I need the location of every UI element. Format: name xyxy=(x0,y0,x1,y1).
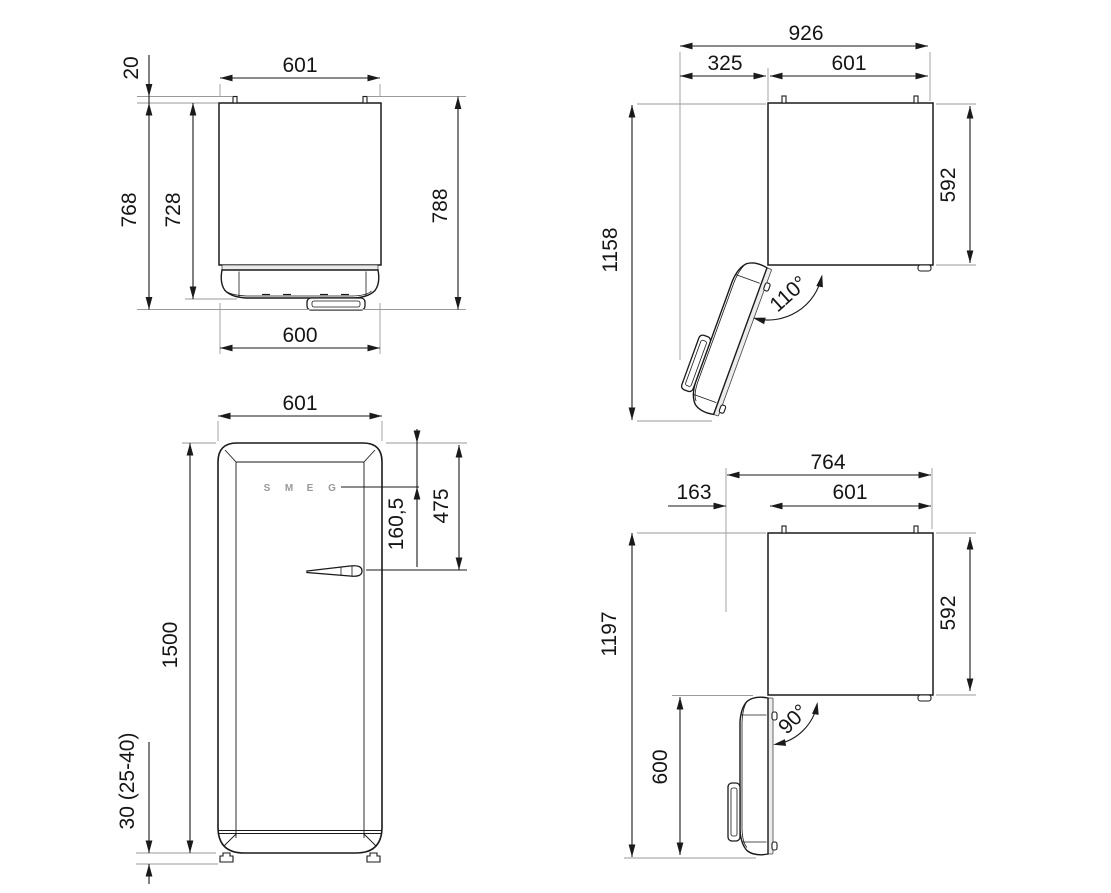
dimension-arrowhead xyxy=(146,841,153,854)
dim-label-handle-offset: 475 xyxy=(430,488,453,523)
dim-label-depth-728: 728 xyxy=(162,192,185,227)
dim-label-depth-open: 1158 xyxy=(599,227,622,272)
dimension-arrowhead xyxy=(455,297,462,310)
dimension-arrowhead xyxy=(368,345,381,352)
dimension-arrowhead xyxy=(916,73,929,80)
dim-label-cabinet-depth: 592 xyxy=(937,595,960,630)
rear-spacer-right xyxy=(363,97,367,104)
dimension-arrowhead xyxy=(455,97,462,110)
hinge-bracket xyxy=(918,695,931,701)
dim-label-overall-width: 926 xyxy=(788,22,823,45)
dimension-arrowhead xyxy=(680,43,693,50)
dimension-arrowhead xyxy=(770,73,783,80)
door-gasket xyxy=(222,265,378,270)
dimension-arrowhead xyxy=(629,845,636,858)
dimension-arrowhead xyxy=(770,503,783,510)
dimension-arrowhead xyxy=(190,287,197,300)
door-shell xyxy=(740,697,768,855)
dimension-arrowhead xyxy=(187,443,194,456)
dimension-arrowhead xyxy=(677,843,684,856)
dimension-arrowhead xyxy=(220,345,233,352)
dimension-arrowhead xyxy=(629,533,636,546)
dimension-arrowhead xyxy=(677,697,684,710)
dim-label-depth-open: 1197 xyxy=(598,611,621,656)
dim-label-width: 601 xyxy=(282,392,317,415)
rear-spacer-left xyxy=(233,97,237,104)
dim-label-height: 1500 xyxy=(159,622,182,669)
dim-label-width: 601 xyxy=(831,52,866,75)
dim-label-feet: 30 (25-40) xyxy=(116,733,139,830)
dimension-arrowhead xyxy=(220,75,233,82)
view-top-open-110: 926 325 601 1158 592 110° xyxy=(599,22,960,418)
door-gasket xyxy=(768,698,773,854)
dimension-arrowhead xyxy=(816,274,825,288)
rear-spacer-left xyxy=(782,96,786,103)
dim-label-door-width: 600 xyxy=(282,324,317,347)
cabinet-outline xyxy=(768,103,933,265)
door-handle xyxy=(307,298,365,310)
dimension-arrowhead xyxy=(414,487,421,500)
dimension-arrowhead xyxy=(727,472,740,479)
dim-label-logo-offset: 160,5 xyxy=(385,498,408,551)
dim-label-overall-width: 764 xyxy=(810,451,845,474)
dim-label-door-swing: 325 xyxy=(707,52,742,75)
dim-label-width: 601 xyxy=(282,54,317,77)
dimension-arrowhead xyxy=(370,413,383,420)
dim-label-door-angle: 90° xyxy=(774,700,813,739)
dim-label-door-protrusion: 163 xyxy=(676,481,711,504)
dim-label-depth-768: 768 xyxy=(118,192,141,227)
dimension-arrowhead xyxy=(967,251,974,264)
door-handle xyxy=(728,783,740,841)
door-hinge-pin xyxy=(772,842,777,850)
dim-label-width: 601 xyxy=(832,481,867,504)
view-top-closed: 601 20 768 728 788 600 xyxy=(118,54,452,347)
dimension-arrowhead xyxy=(146,864,153,877)
dimension-arrowhead xyxy=(218,413,231,420)
dim-label-door-width: 600 xyxy=(649,749,672,784)
dimension-arrowhead xyxy=(967,537,974,550)
dimension-arrowhead xyxy=(146,84,153,97)
dimension-arrowhead xyxy=(368,75,381,82)
brand-logo-letter-g: G xyxy=(328,483,336,494)
view-top-open-90: 764 163 601 592 1197 600 90° xyxy=(598,451,960,855)
cabinet-outline xyxy=(219,103,381,265)
dimension-arrowhead xyxy=(146,297,153,310)
dimension-arrowhead xyxy=(146,103,153,116)
brand-logo-letter-e: E xyxy=(307,483,314,494)
dimension-arrowhead xyxy=(190,103,197,116)
dimension-drawing: 601 20 768 728 788 600 926 325 601 1158 … xyxy=(0,0,1111,893)
foot-right xyxy=(367,853,380,862)
dim-label-rear-spacer: 20 xyxy=(120,56,143,79)
dimension-arrowhead xyxy=(629,105,636,118)
dimension-arrowhead xyxy=(456,445,463,458)
dimension-arrowhead xyxy=(919,503,932,510)
dimension-arrowhead xyxy=(967,679,974,692)
dimension-arrowhead xyxy=(967,106,974,119)
rear-spacer-right xyxy=(914,526,918,533)
rear-spacer-right xyxy=(914,96,918,103)
brand-logo-letter-m: M xyxy=(285,483,293,494)
dim-label-cabinet-depth: 592 xyxy=(937,167,960,202)
cabinet-outline xyxy=(768,533,933,695)
door-hinge-pin xyxy=(772,712,777,720)
fridge-front-outline xyxy=(218,443,382,853)
brand-logo-letter-s: S xyxy=(264,483,271,494)
dim-label-depth-788: 788 xyxy=(429,188,452,223)
dimension-arrowhead xyxy=(456,558,463,571)
dimension-arrowhead xyxy=(916,43,929,50)
dimension-arrowhead xyxy=(754,73,767,80)
door-open-110 xyxy=(676,253,776,418)
dimension-arrowhead xyxy=(629,408,636,421)
dimension-arrowhead xyxy=(187,841,194,854)
door-open-90 xyxy=(728,697,777,855)
dim-label-door-angle: 110° xyxy=(765,272,812,317)
hinge-bracket xyxy=(918,265,931,271)
dimension-arrowhead xyxy=(714,503,727,510)
foot-left xyxy=(220,853,233,862)
rear-spacer-left xyxy=(782,526,786,533)
dimension-arrowhead xyxy=(812,701,821,714)
dimension-arrowhead xyxy=(919,472,932,479)
dimension-arrowhead xyxy=(414,431,421,444)
drawing-canvas: 601 20 768 728 788 600 926 325 601 1158 … xyxy=(0,0,1111,893)
dimension-arrowhead xyxy=(773,739,786,748)
door-top-view-closed xyxy=(221,265,379,310)
view-front: S M E G 601 160,5 475 1500 30 (25-40) xyxy=(116,392,453,862)
dimension-arrowhead xyxy=(680,73,693,80)
door-shell xyxy=(221,270,379,298)
